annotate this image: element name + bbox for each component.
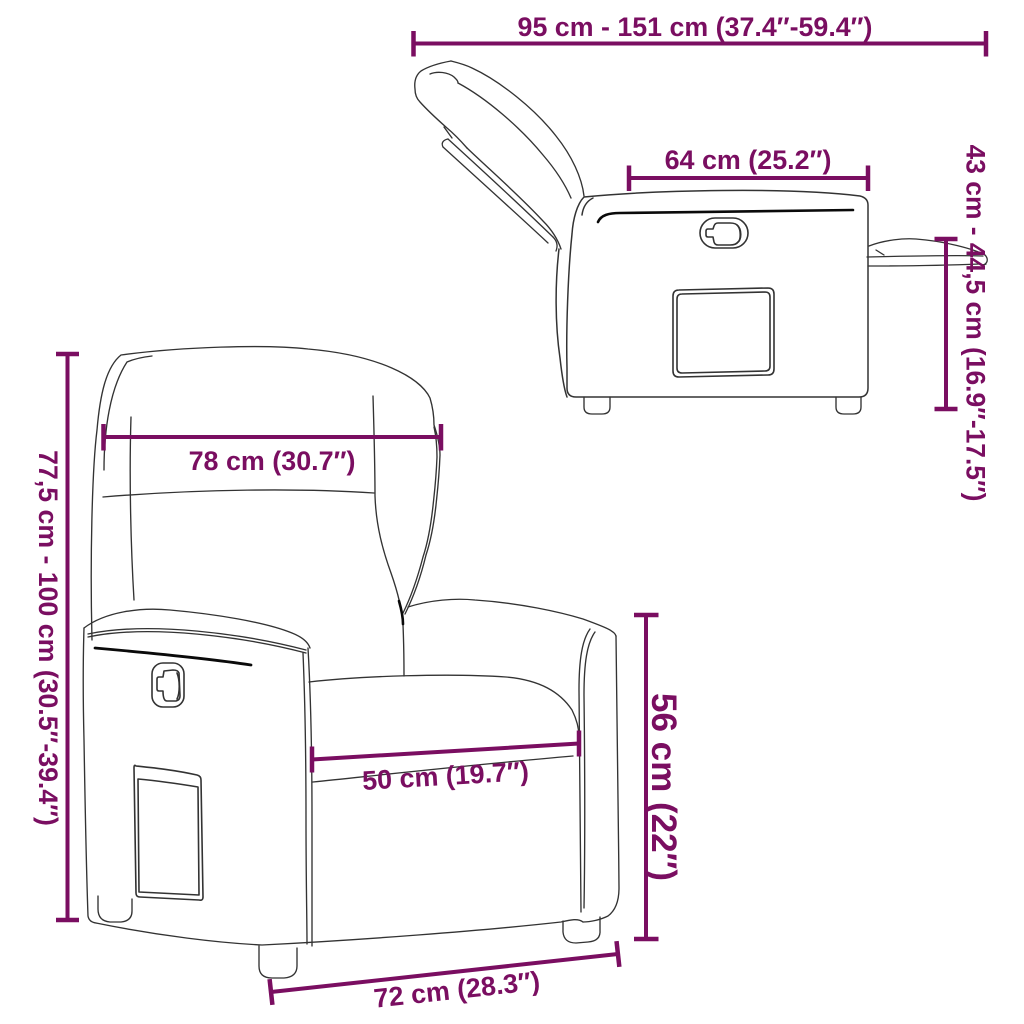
svg-text:56 cm (22″): 56 cm (22″) — [644, 693, 683, 881]
svg-text:64 cm (25.2″): 64 cm (25.2″) — [665, 145, 832, 175]
svg-text:95 cm - 151 cm (37.4″-59.4″): 95 cm - 151 cm (37.4″-59.4″) — [518, 12, 873, 42]
svg-text:78 cm (30.7″): 78 cm (30.7″) — [189, 446, 356, 476]
svg-text:50 cm (19.7″): 50 cm (19.7″) — [361, 756, 529, 796]
svg-text:77,5 cm - 100 cm (30.5″-39.4″): 77,5 cm - 100 cm (30.5″-39.4″) — [33, 450, 63, 826]
svg-text:43 cm - 44,5 cm (16.9″-17.5″): 43 cm - 44,5 cm (16.9″-17.5″) — [961, 145, 991, 502]
